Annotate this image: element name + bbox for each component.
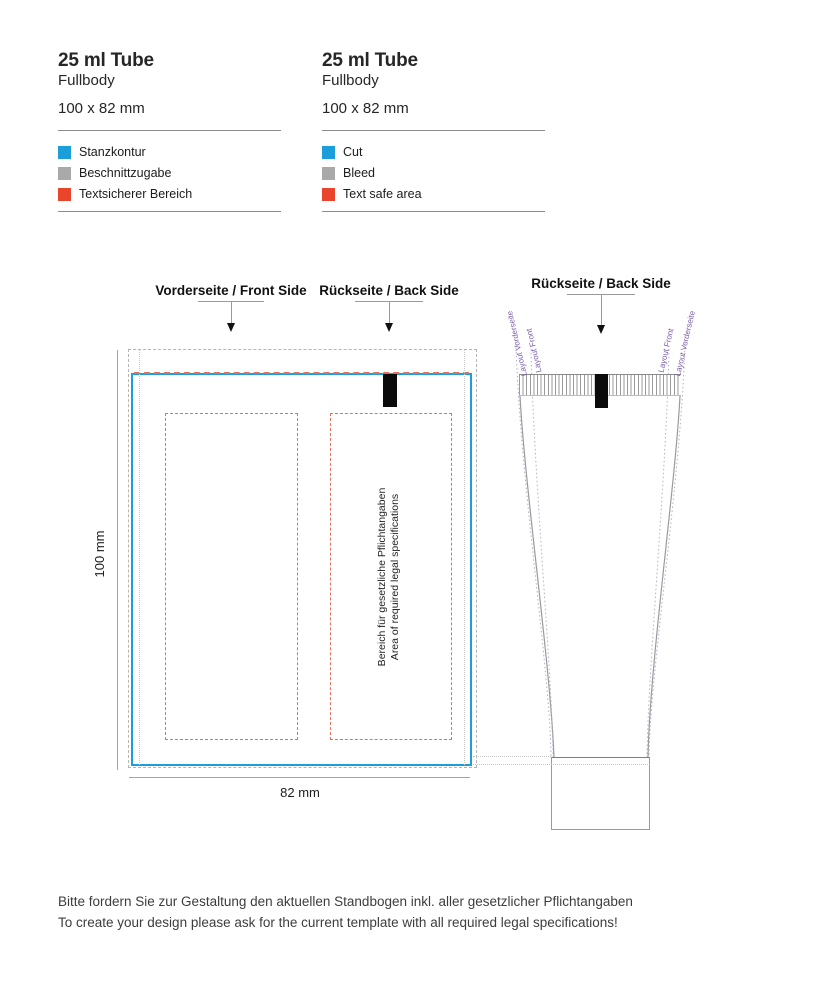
legend-item-label: Cut [343, 145, 362, 159]
tube-cap [551, 757, 650, 830]
text-safe-color-swatch [322, 188, 335, 201]
product-size: 100 x 82 mm [322, 100, 409, 117]
arrow-down-icon [385, 323, 393, 332]
legend-item-text-safe: Text safe area [322, 187, 422, 201]
legend-block-german: 25 ml Tube Fullbody 100 x 82 mm Stanzkon… [58, 50, 281, 215]
legend-item-label: Bleed [343, 166, 375, 180]
product-subtitle: Fullbody [58, 72, 115, 89]
text-safe-color-swatch [58, 188, 71, 201]
legend-block-english: 25 ml Tube Fullbody 100 x 82 mm Cut Blee… [322, 50, 545, 215]
legend-item-label: Beschnittzugabe [79, 166, 171, 180]
alignment-dotted-line-upper [473, 756, 551, 757]
tube-side-right [648, 396, 680, 757]
alignment-dotted-line-lower [473, 764, 650, 765]
tube-back-side-pointer-label: Rückseite / Back Side [511, 276, 691, 291]
legend-item-cut: Stanzkontur [58, 145, 146, 159]
legend-item-label: Stanzkontur [79, 145, 146, 159]
footer-note-de: Bitte fordern Sie zur Gestaltung den akt… [58, 891, 633, 912]
bleed-color-swatch [58, 167, 71, 180]
seam-line-left [139, 350, 140, 765]
front-side-pointer-label: Vorderseite / Front Side [141, 283, 321, 298]
height-dimension-label: 100 mm [92, 514, 108, 594]
pointer-line [601, 295, 602, 325]
registration-mark [383, 374, 397, 407]
arrow-down-icon [227, 323, 235, 332]
tube-side-left [520, 396, 554, 757]
legend-item-label: Text safe area [343, 187, 422, 201]
divider [322, 130, 545, 131]
text-safe-top-line [134, 372, 469, 374]
divider [58, 211, 281, 212]
product-title: 25 ml Tube [58, 50, 154, 72]
legal-area-note-de: Bereich für gesetzliche Pflichtangaben [376, 467, 389, 687]
width-dimension-line [129, 777, 470, 778]
footer-note: Bitte fordern Sie zur Gestaltung den akt… [58, 891, 633, 933]
legal-area-note: Bereich für gesetzliche Pflichtangaben A… [376, 467, 406, 687]
pointer-line [389, 302, 390, 323]
product-size: 100 x 82 mm [58, 100, 145, 117]
legend-item-text-safe: Textsicherer Bereich [58, 187, 192, 201]
cut-color-swatch [322, 146, 335, 159]
cut-color-swatch [58, 146, 71, 159]
legend-item-bleed: Beschnittzugabe [58, 166, 171, 180]
product-subtitle: Fullbody [322, 72, 379, 89]
pointer-line [231, 302, 232, 323]
back-side-pointer-label: Rückseite / Back Side [299, 283, 479, 298]
footer-note-en: To create your design please ask for the… [58, 912, 633, 933]
legal-area-note-en: Area of required legal specifications [389, 467, 402, 687]
legend-item-label: Textsicherer Bereich [79, 187, 192, 201]
tube-registration-mark [595, 374, 608, 408]
print-template-sheet: 25 ml Tube Fullbody 100 x 82 mm Stanzkon… [0, 0, 833, 1000]
bleed-color-swatch [322, 167, 335, 180]
text-safe-area-front [165, 413, 298, 740]
legend-item-cut: Cut [322, 145, 362, 159]
divider [58, 130, 281, 131]
divider [322, 211, 545, 212]
product-title: 25 ml Tube [322, 50, 418, 72]
seam-line-right [464, 350, 465, 765]
width-dimension-label: 82 mm [270, 785, 330, 800]
legend-item-bleed: Bleed [322, 166, 375, 180]
height-dimension-line [117, 350, 118, 770]
